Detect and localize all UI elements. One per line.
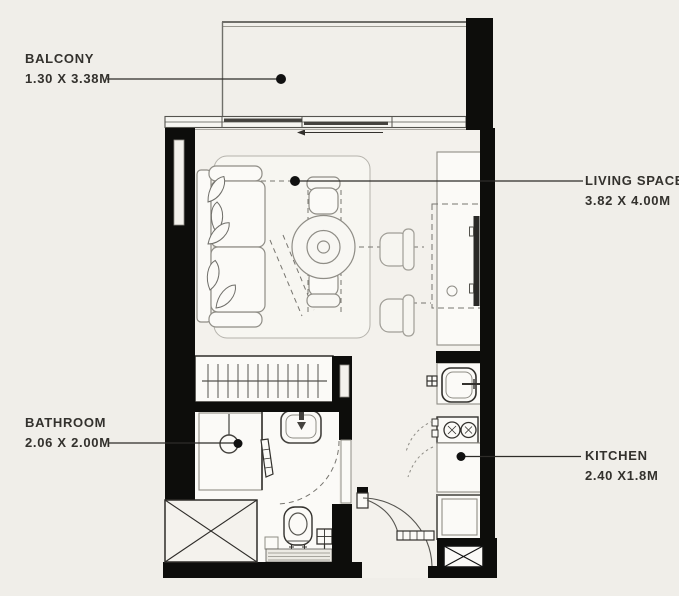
- entry-door-leaf: [397, 531, 434, 540]
- entry-jamb-head: [357, 487, 368, 493]
- sofa-armrest: [209, 166, 262, 181]
- bathroom-leader-dot: [234, 439, 243, 448]
- bathroom-sink: [281, 410, 321, 443]
- wall-window-slot: [174, 140, 184, 225]
- wall-right-upper: [466, 18, 493, 130]
- balcony-label: BALCONY 1.30 X 3.38M: [25, 49, 111, 89]
- wall-bathroom-right-upper: [339, 412, 352, 440]
- dining-chair-back: [307, 294, 340, 307]
- living-space-label: LIVING SPACE 3.82 X 4.00M: [585, 171, 679, 211]
- kitchen-label-name: KITCHEN: [585, 448, 648, 463]
- tv-screen: [474, 216, 480, 306]
- stove: [432, 417, 478, 443]
- sliding-panel: [224, 119, 302, 122]
- entry-jamb: [357, 493, 368, 508]
- side-chair-back: [403, 229, 414, 270]
- kitchen-label-dims: 2.40 X1.8M: [585, 466, 659, 486]
- balcony-floor: [222, 22, 466, 117]
- wardrobe-body: [195, 356, 333, 402]
- table-top: [292, 216, 355, 279]
- stove-knob: [432, 430, 438, 437]
- kitchen-shaft: [444, 546, 483, 567]
- balcony-label-dims: 1.30 X 3.38M: [25, 69, 111, 89]
- wc-threshold: [266, 549, 332, 562]
- wardrobe: [195, 356, 333, 402]
- sliding-panel: [304, 122, 388, 125]
- kitchen-leader-dot: [457, 452, 466, 461]
- kitchen-label: KITCHEN 2.40 X1.8M: [585, 446, 659, 486]
- wall-bottom-step: [428, 566, 438, 578]
- void-shaft: [165, 500, 257, 562]
- balcony: [222, 22, 466, 117]
- living-space-label-name: LIVING SPACE: [585, 173, 679, 188]
- wall-bathroom-top: [195, 402, 352, 412]
- sofa: [197, 166, 265, 327]
- bathroom-label-name: BATHROOM: [25, 415, 106, 430]
- floor-plan: BALCONY 1.30 X 3.38M LIVING SPACE 3.82 X…: [0, 0, 679, 596]
- wall-right: [480, 128, 495, 578]
- wall-niche: [340, 365, 349, 397]
- kitchen-worktop: [437, 443, 481, 492]
- stove-body: [437, 417, 478, 443]
- floor-plan-drawing: [0, 0, 679, 596]
- wall-bathroom-right-lower: [332, 504, 352, 565]
- dining-chair-seat: [309, 188, 338, 214]
- side-chair-back: [403, 295, 414, 336]
- living-space-label-dims: 3.82 X 4.00M: [585, 191, 679, 211]
- wall-kitchen-divider: [436, 351, 482, 363]
- sofa-armrest: [209, 312, 262, 327]
- balcony-leader-dot: [276, 74, 286, 84]
- wall-bottom-left: [163, 562, 362, 578]
- kitchen-cabinet: [437, 495, 481, 539]
- bathroom-bin: [265, 537, 278, 549]
- bathroom-label-dims: 2.06 X 2.00M: [25, 433, 111, 453]
- living-leader-dot: [290, 176, 300, 186]
- outlet-icon: [427, 376, 437, 386]
- stove-knob: [432, 419, 438, 426]
- door-jamb-strip: [341, 440, 351, 503]
- bathroom-label: BATHROOM 2.06 X 2.00M: [25, 413, 111, 453]
- balcony-label-name: BALCONY: [25, 51, 94, 66]
